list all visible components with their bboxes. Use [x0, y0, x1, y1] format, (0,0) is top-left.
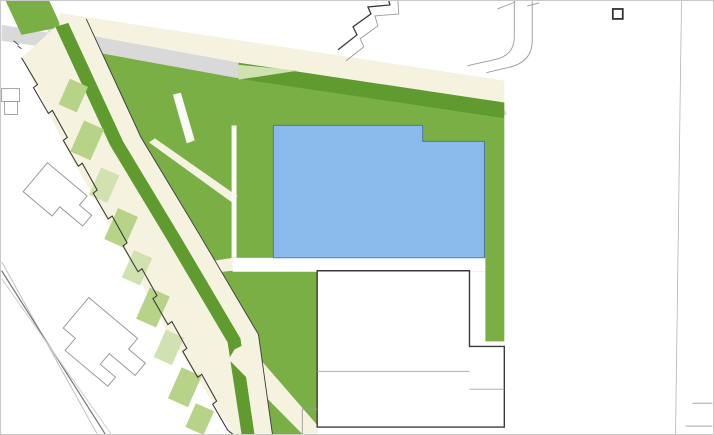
club-building-footprint [317, 271, 504, 427]
lawn-patch [185, 403, 214, 434]
building-outline-west-3 [2, 89, 20, 102]
utility-square [613, 9, 623, 19]
east-curb-line [676, 1, 682, 434]
building-mark-north-2 [527, 3, 539, 6]
sports-courts [273, 125, 484, 257]
building-zigzag-north-dark [338, 1, 390, 50]
building-zigzag-north-gray [346, 1, 399, 61]
club-building [302, 271, 504, 434]
building-mark-north-1 [497, 2, 515, 9]
courts-south-path [233, 258, 486, 272]
street-corner-curve-1 [467, 1, 514, 66]
building-outline-west-4 [5, 102, 18, 115]
tennis-courts-pad [273, 125, 484, 257]
courts-west-path [232, 125, 237, 257]
street-corner-curve-2 [486, 1, 532, 73]
site-plan-drawing [1, 1, 713, 434]
site-plan-canvas [0, 0, 714, 435]
